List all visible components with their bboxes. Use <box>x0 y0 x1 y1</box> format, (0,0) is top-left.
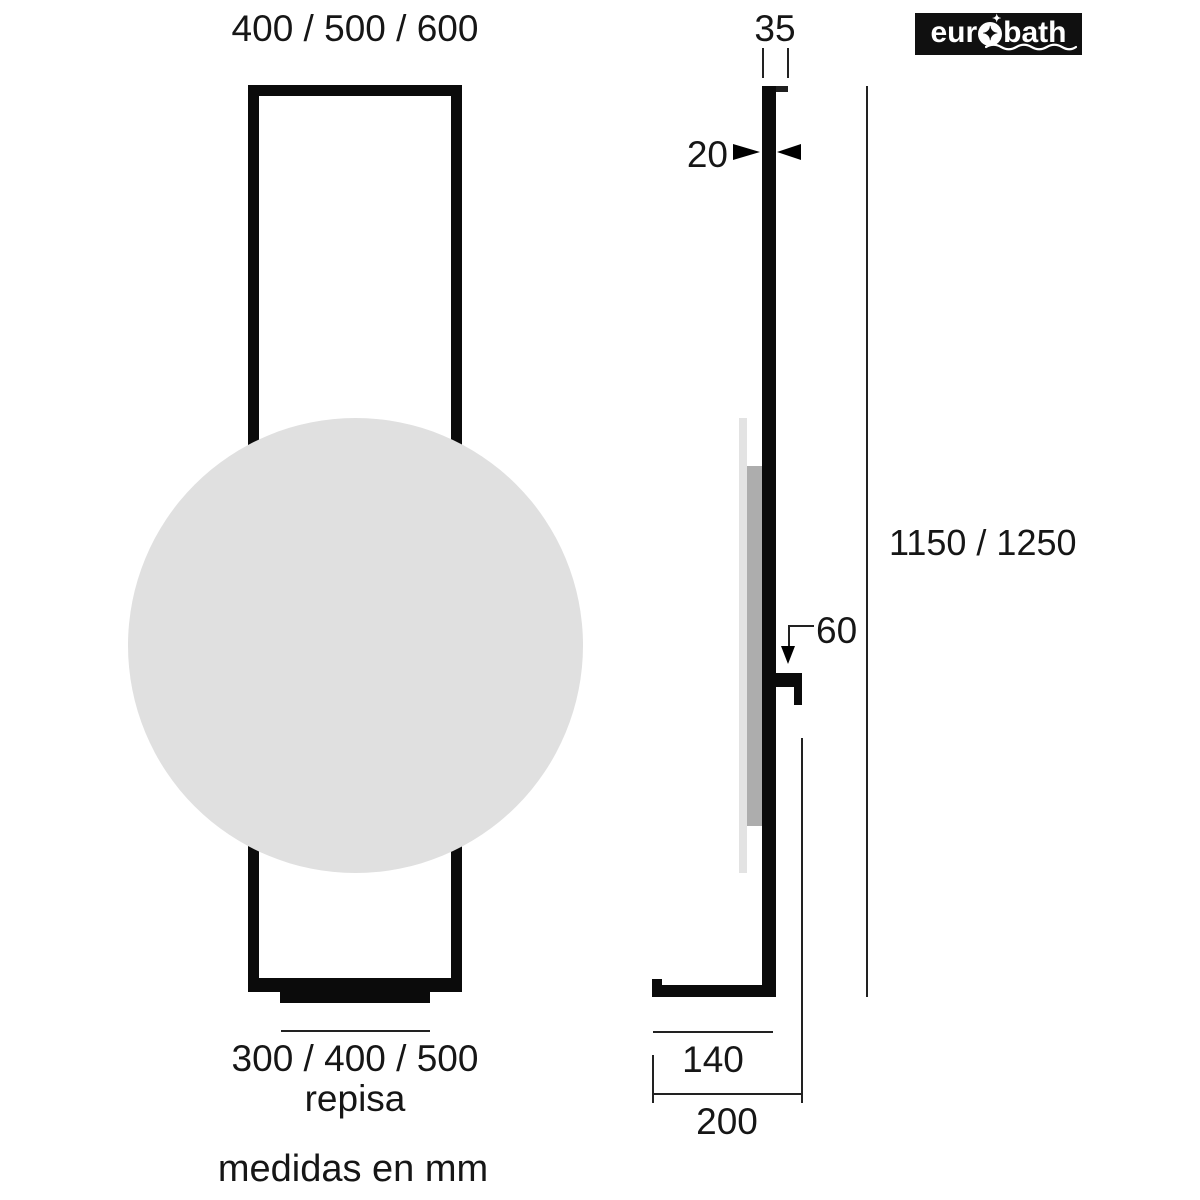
extension-line-200-right <box>801 738 803 1103</box>
foot-depth-dimension-line <box>653 1031 773 1033</box>
shelf-bracket-profile <box>776 673 802 687</box>
dim-arrow-down-icon <box>781 646 795 664</box>
panel-profile <box>762 86 776 997</box>
mirror-circle <box>128 418 583 873</box>
total-depth-dimension-line <box>652 1093 802 1095</box>
thickness-label: 20 <box>660 136 728 175</box>
logo-star-glyph: ✦ <box>982 25 998 44</box>
height-dimension-line <box>866 86 868 997</box>
shelf-drop-label: 60 <box>816 612 857 651</box>
top-depth-label: 35 <box>745 10 805 49</box>
dim-arrow-left-icon <box>777 144 801 160</box>
extension-line-35-right <box>787 48 789 78</box>
shelf-dimension-line <box>281 1030 430 1032</box>
eurobath-logo: eur ✦ ✦ bath <box>915 13 1082 55</box>
units-note: medidas en mm <box>173 1150 533 1190</box>
height-label: 1150 / 1250 <box>889 524 1077 562</box>
extension-line-35-left <box>762 48 764 78</box>
shelf-name-label: repisa <box>175 1080 535 1119</box>
leader-line-60-vertical <box>788 625 790 647</box>
logo-wave-icon <box>985 42 1077 52</box>
dim-arrow-right-icon <box>733 144 760 160</box>
leader-line-60-horizontal <box>788 625 814 627</box>
mirror-glass-edge-profile <box>739 418 747 873</box>
technical-drawing-mirror-dimensions: 400 / 500 / 600 300 / 400 / 500 repisa m… <box>0 0 1200 1200</box>
shelf-front-view <box>280 992 430 1003</box>
mirror-backing-profile <box>747 466 762 826</box>
bottom-foot-profile <box>652 985 776 997</box>
shelf-width-label: 300 / 400 / 500 <box>175 1040 535 1079</box>
logo-sparkle-icon: ✦ <box>992 14 1001 25</box>
foot-depth-label: 140 <box>653 1041 773 1080</box>
shelf-bracket-lip <box>794 687 802 705</box>
bottom-foot-lip <box>652 979 662 997</box>
logo-text-left: eur <box>930 16 977 50</box>
front-width-label: 400 / 500 / 600 <box>175 10 535 49</box>
extension-line-200-left <box>652 1055 654 1103</box>
total-depth-label: 200 <box>652 1103 802 1142</box>
